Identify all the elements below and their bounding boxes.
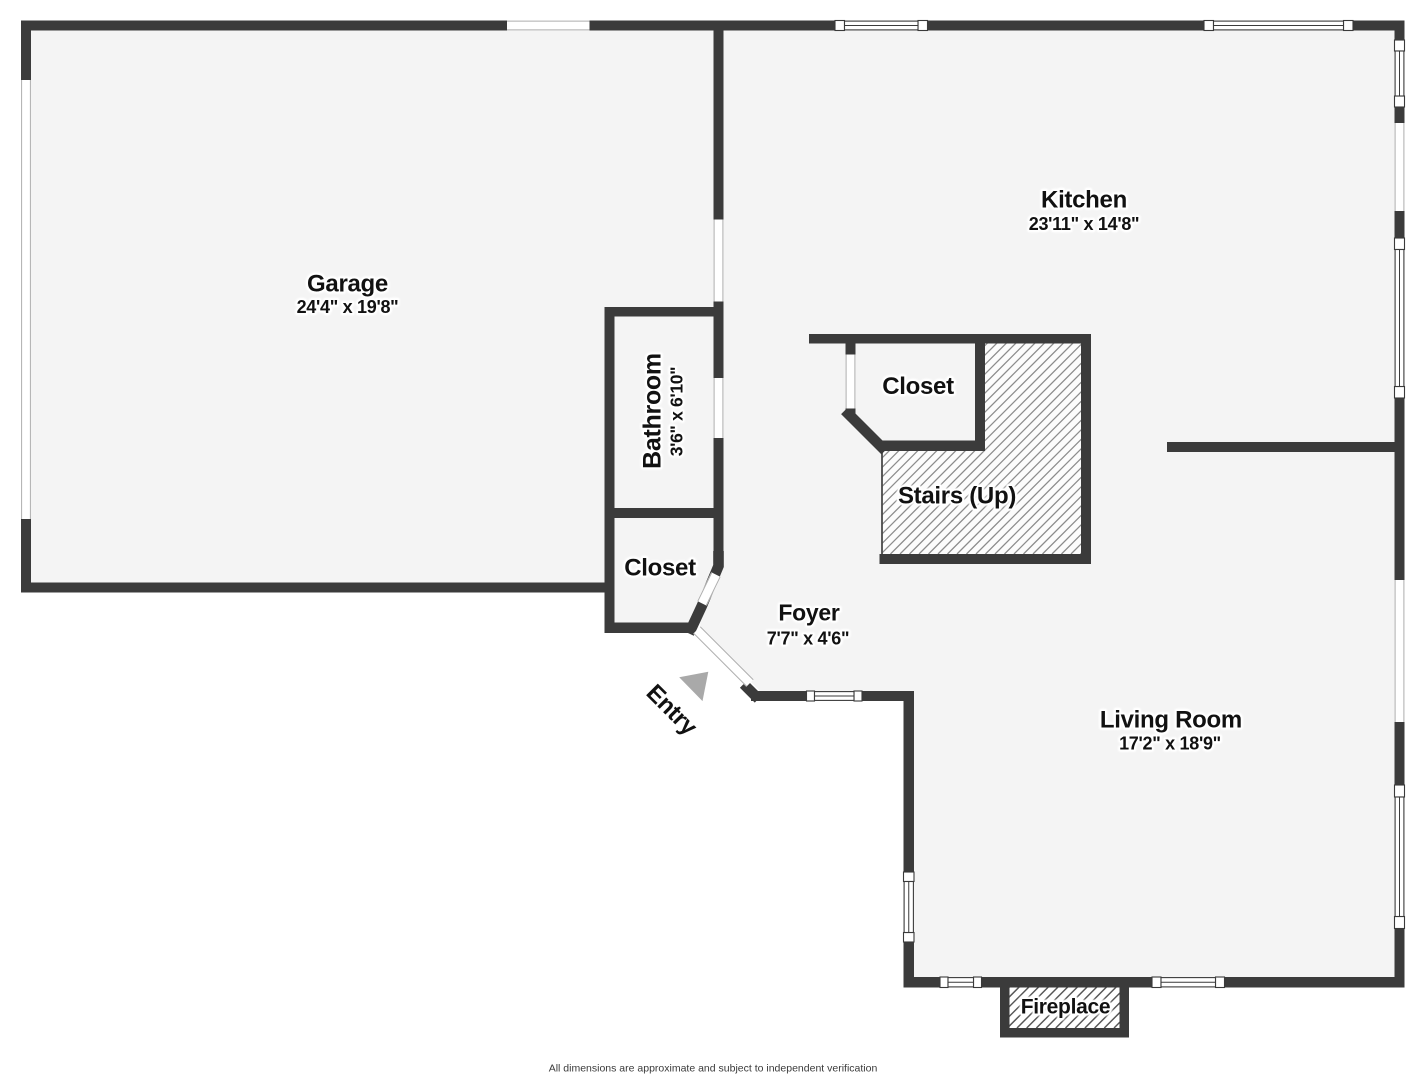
svg-text:Living Room: Living Room <box>1100 707 1242 734</box>
svg-text:24'4" x 19'8": 24'4" x 19'8" <box>297 297 399 317</box>
svg-text:Bathroom: Bathroom <box>639 353 667 469</box>
svg-text:Kitchen: Kitchen <box>1041 187 1127 214</box>
svg-text:3'6" x 6'10": 3'6" x 6'10" <box>666 367 686 456</box>
svg-text:Fireplace: Fireplace <box>1021 996 1111 1019</box>
svg-text:Foyer: Foyer <box>778 600 839 626</box>
svg-text:Garage: Garage <box>307 271 388 298</box>
svg-text:7'7" x 4'6": 7'7" x 4'6" <box>767 629 849 649</box>
svg-text:All dimensions are approximate: All dimensions are approximate and subje… <box>549 1063 878 1075</box>
svg-text:17'2" x 18'9": 17'2" x 18'9" <box>1119 734 1221 754</box>
svg-text:Closet: Closet <box>882 373 954 400</box>
svg-text:Closet: Closet <box>624 555 696 582</box>
svg-text:Stairs (Up): Stairs (Up) <box>898 483 1016 510</box>
svg-text:23'11" x 14'8": 23'11" x 14'8" <box>1029 214 1140 234</box>
